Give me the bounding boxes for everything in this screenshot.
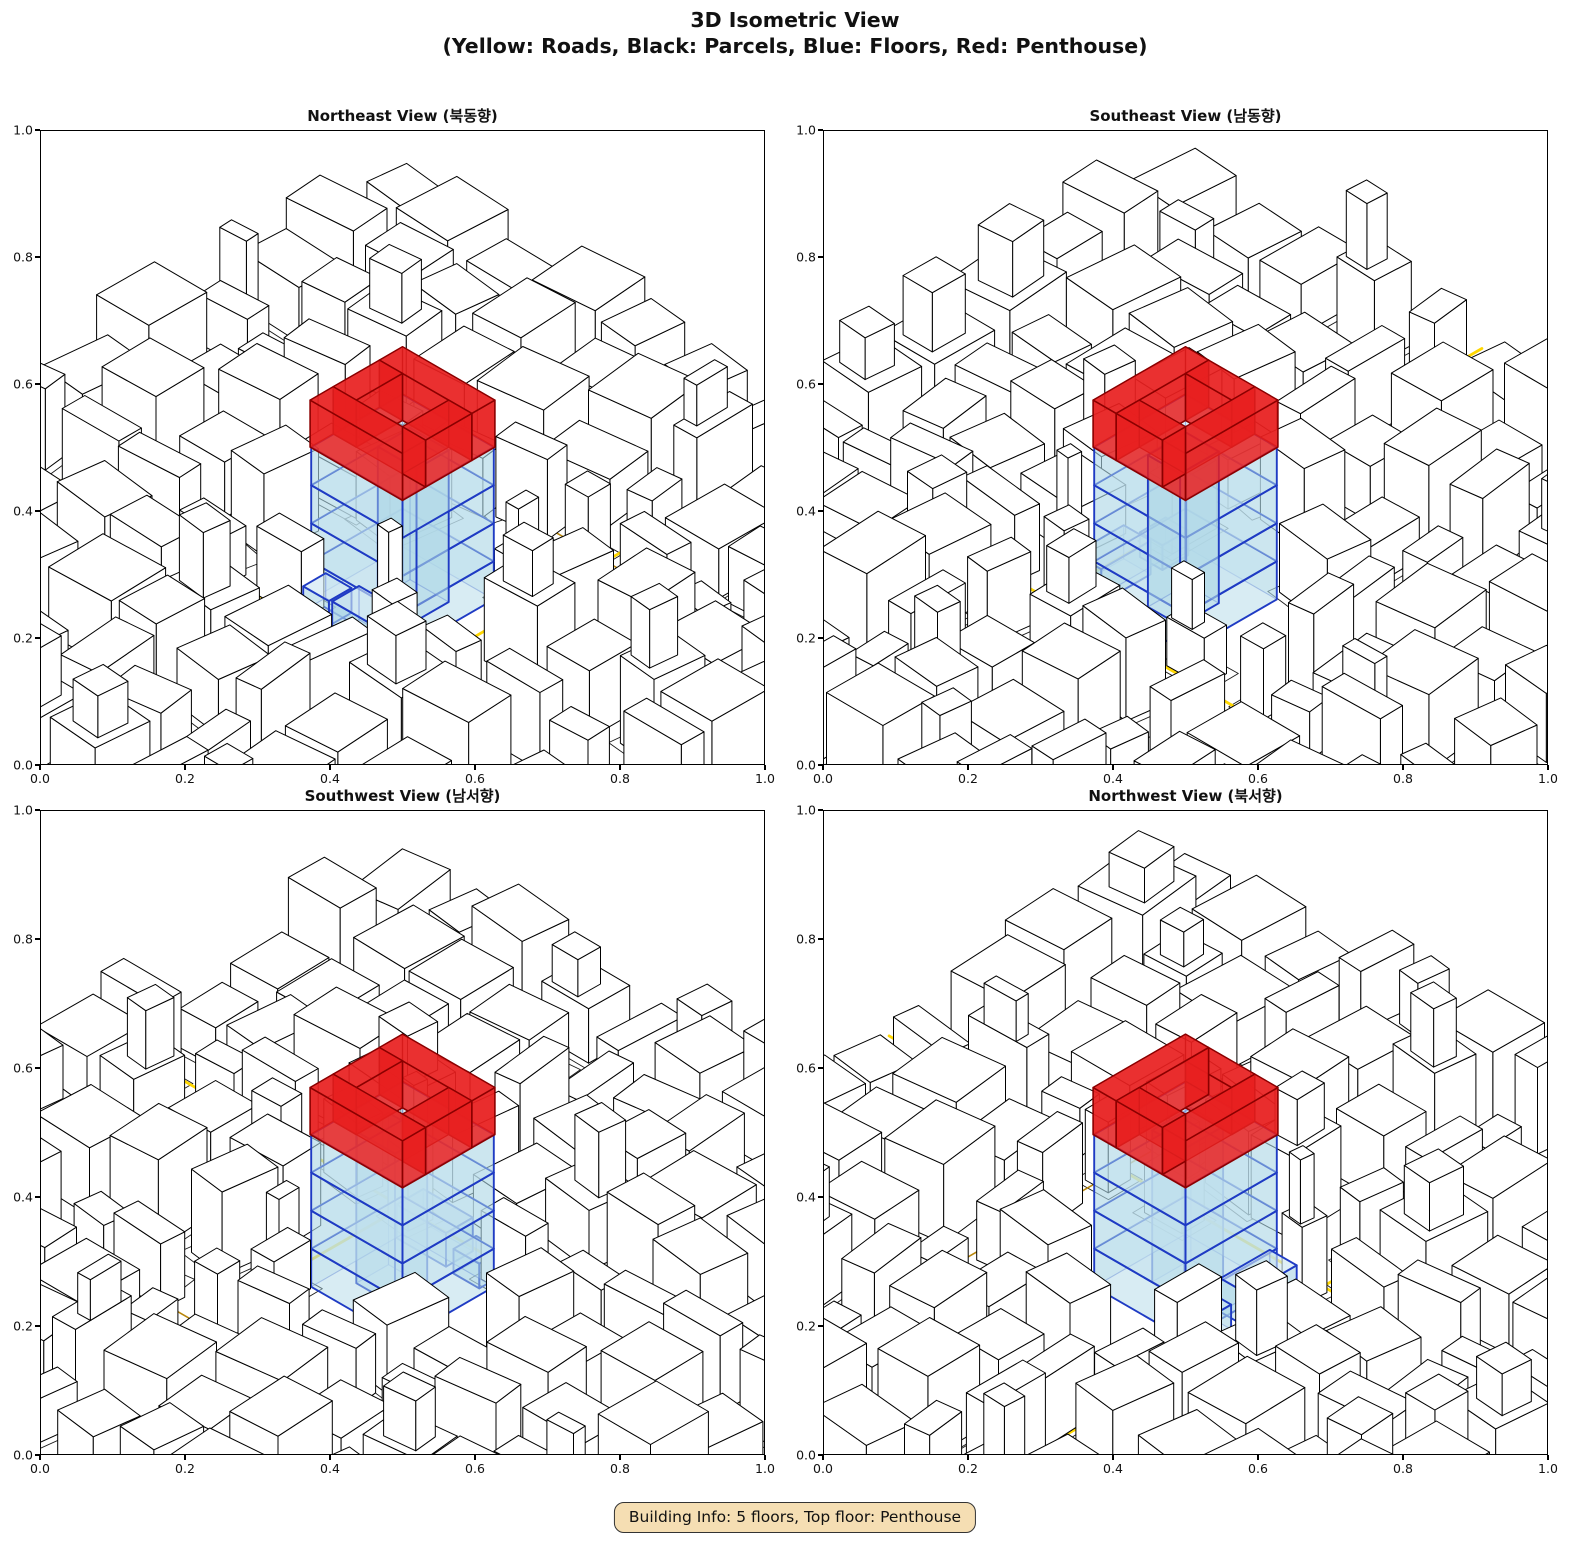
- x-tick-mark: [329, 765, 330, 770]
- x-tick-label: 1.0: [755, 1461, 775, 1476]
- x-tick-label: 0.6: [465, 1461, 485, 1476]
- y-tick-label: 0.0: [0, 758, 33, 773]
- subplot-southeast: Southeast View (남동향) 0.00.20.40.60.81.00…: [823, 130, 1548, 765]
- plot-area-northeast: [40, 130, 765, 765]
- x-tick-mark: [184, 765, 185, 770]
- y-tick-mark: [35, 510, 40, 511]
- y-tick-mark: [818, 1454, 823, 1455]
- plot-area-southwest: [40, 810, 765, 1455]
- x-tick-mark: [1257, 765, 1258, 770]
- x-tick-mark: [329, 1455, 330, 1460]
- y-tick-label: 0.2: [0, 1319, 33, 1334]
- y-tick-mark: [35, 764, 40, 765]
- x-tick-label: 0.4: [1103, 1461, 1123, 1476]
- plot-area-southeast: [823, 130, 1548, 765]
- x-tick-label: 0.0: [813, 1461, 833, 1476]
- y-tick-label: 0.4: [0, 1190, 33, 1205]
- x-tick-mark: [184, 1455, 185, 1460]
- x-tick-mark: [1547, 765, 1548, 770]
- y-tick-label: 0.0: [782, 758, 816, 773]
- x-tick-mark: [822, 1455, 823, 1460]
- x-tick-label: 0.8: [610, 1461, 630, 1476]
- subplot-northeast: Northeast View (북동향) 0.00.20.40.60.81.00…: [40, 130, 765, 765]
- subplot-northwest: Northwest View (북서향) 0.00.20.40.60.81.00…: [823, 810, 1548, 1455]
- y-tick-label: 0.4: [782, 1190, 816, 1205]
- x-tick-label: 1.0: [755, 771, 775, 786]
- x-tick-mark: [1112, 765, 1113, 770]
- x-tick-mark: [967, 765, 968, 770]
- subplot-title-southwest: Southwest View (남서향): [40, 785, 765, 806]
- x-tick-mark: [1402, 1455, 1403, 1460]
- y-tick-label: 0.6: [782, 377, 816, 392]
- x-tick-label: 0.6: [465, 771, 485, 786]
- x-tick-mark: [764, 765, 765, 770]
- y-tick-mark: [818, 256, 823, 257]
- y-tick-mark: [35, 1454, 40, 1455]
- x-tick-mark: [1547, 1455, 1548, 1460]
- isometric-scene-southwest: [41, 811, 764, 1454]
- subplot-title-southeast: Southeast View (남동향): [823, 105, 1548, 126]
- x-tick-label: 0.2: [175, 771, 195, 786]
- y-tick-mark: [35, 129, 40, 130]
- isometric-scene-northeast: [41, 131, 764, 764]
- y-tick-label: 0.4: [0, 504, 33, 519]
- x-tick-label: 1.0: [1538, 771, 1558, 786]
- x-tick-label: 0.2: [958, 1461, 978, 1476]
- plot-area-northwest: [823, 810, 1548, 1455]
- y-tick-label: 0.2: [782, 1319, 816, 1334]
- y-tick-label: 0.0: [782, 1448, 816, 1463]
- subplot-southwest: Southwest View (남서향) 0.00.20.40.60.81.00…: [40, 810, 765, 1455]
- x-tick-mark: [39, 765, 40, 770]
- x-tick-mark: [764, 1455, 765, 1460]
- x-tick-label: 0.8: [1393, 771, 1413, 786]
- y-tick-mark: [35, 383, 40, 384]
- y-tick-label: 0.4: [782, 504, 816, 519]
- x-tick-label: 0.0: [30, 1461, 50, 1476]
- building-info-badge: Building Info: 5 floors, Top floor: Pent…: [614, 1502, 976, 1533]
- x-tick-label: 0.2: [958, 771, 978, 786]
- y-tick-label: 1.0: [0, 803, 33, 818]
- y-tick-mark: [35, 1325, 40, 1326]
- x-tick-mark: [1257, 1455, 1258, 1460]
- y-tick-label: 0.0: [0, 1448, 33, 1463]
- x-tick-label: 0.4: [320, 1461, 340, 1476]
- y-tick-mark: [818, 510, 823, 511]
- x-tick-label: 0.8: [1393, 1461, 1413, 1476]
- y-tick-label: 0.6: [0, 377, 33, 392]
- x-tick-mark: [1112, 1455, 1113, 1460]
- y-tick-label: 0.8: [0, 932, 33, 947]
- subplot-title-northeast: Northeast View (북동향): [40, 105, 765, 126]
- y-tick-mark: [35, 938, 40, 939]
- y-tick-label: 0.2: [782, 631, 816, 646]
- x-tick-label: 0.0: [813, 771, 833, 786]
- y-tick-mark: [818, 1325, 823, 1326]
- x-tick-mark: [474, 1455, 475, 1460]
- y-tick-label: 1.0: [0, 123, 33, 138]
- y-tick-mark: [35, 256, 40, 257]
- y-tick-mark: [35, 1067, 40, 1068]
- x-tick-label: 0.6: [1248, 771, 1268, 786]
- y-tick-mark: [35, 1196, 40, 1197]
- x-tick-mark: [619, 1455, 620, 1460]
- x-tick-mark: [822, 765, 823, 770]
- subplot-title-northwest: Northwest View (북서향): [823, 785, 1548, 806]
- y-tick-label: 0.8: [782, 250, 816, 265]
- y-tick-mark: [818, 1067, 823, 1068]
- y-tick-mark: [818, 1196, 823, 1197]
- x-tick-mark: [1402, 765, 1403, 770]
- y-tick-mark: [818, 809, 823, 810]
- page-title-line1: 3D Isometric View: [0, 7, 1590, 33]
- y-tick-mark: [818, 938, 823, 939]
- y-tick-mark: [818, 129, 823, 130]
- y-tick-mark: [818, 764, 823, 765]
- x-tick-label: 0.8: [610, 771, 630, 786]
- page-title-line2: (Yellow: Roads, Black: Parcels, Blue: Fl…: [0, 33, 1590, 59]
- y-tick-label: 0.8: [782, 932, 816, 947]
- y-tick-label: 0.8: [0, 250, 33, 265]
- y-tick-label: 0.2: [0, 631, 33, 646]
- x-tick-mark: [39, 1455, 40, 1460]
- x-tick-mark: [619, 765, 620, 770]
- x-tick-label: 0.4: [320, 771, 340, 786]
- y-tick-label: 0.6: [0, 1061, 33, 1076]
- x-tick-label: 0.2: [175, 1461, 195, 1476]
- y-tick-mark: [818, 383, 823, 384]
- y-tick-mark: [35, 809, 40, 810]
- y-tick-mark: [818, 637, 823, 638]
- x-tick-label: 0.4: [1103, 771, 1123, 786]
- y-tick-label: 0.6: [782, 1061, 816, 1076]
- y-tick-mark: [35, 637, 40, 638]
- x-tick-mark: [474, 765, 475, 770]
- x-tick-label: 0.0: [30, 771, 50, 786]
- isometric-scene-southeast: [824, 131, 1547, 764]
- x-tick-mark: [967, 1455, 968, 1460]
- y-tick-label: 1.0: [782, 803, 816, 818]
- y-tick-label: 1.0: [782, 123, 816, 138]
- isometric-scene-northwest: [824, 811, 1547, 1454]
- x-tick-label: 1.0: [1538, 1461, 1558, 1476]
- x-tick-label: 0.6: [1248, 1461, 1268, 1476]
